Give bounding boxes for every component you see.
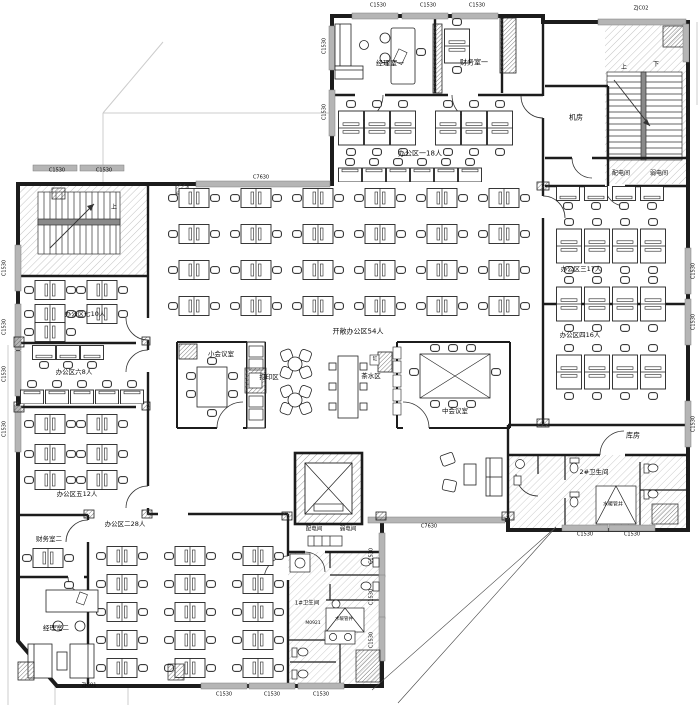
elevator-shaft (295, 453, 362, 524)
print-area-furniture (245, 342, 266, 428)
finance-2-furniture (23, 549, 74, 568)
staircase-left (38, 188, 120, 254)
desks-area-1 (339, 101, 513, 182)
floor-plan: C1530C1530C1530ZJC02C1530C1530经理室一财务室一办公… (0, 0, 700, 705)
desks-left-wing (21, 281, 144, 490)
manager-2-furniture (18, 582, 98, 680)
leader-lines (372, 527, 556, 703)
power-room-equipment (308, 536, 342, 546)
manager-1-furniture (335, 24, 442, 93)
meeting-small-furniture (179, 344, 237, 416)
lounge-furniture (440, 452, 502, 496)
finance-1-furniture (445, 18, 517, 73)
desks-right-wing (557, 187, 666, 400)
tea-area-furniture (279, 348, 392, 418)
floor-plan-canvas (0, 0, 700, 705)
desks-area-2 (97, 547, 284, 681)
meeting-mid-furniture (393, 345, 500, 415)
desks-open-area (169, 189, 530, 316)
